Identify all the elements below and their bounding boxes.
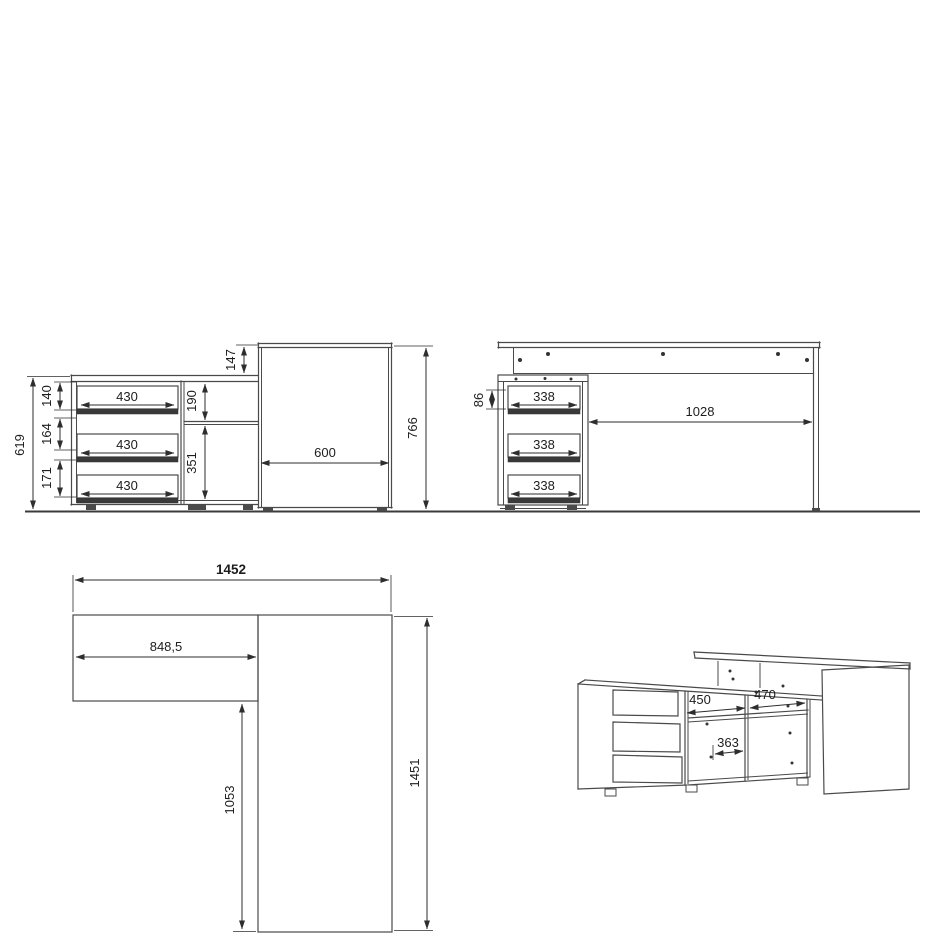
side-drawer-2: 338	[508, 434, 580, 462]
plan-view: 1452 848,5 1053 1451	[73, 562, 433, 932]
front-view: 430 430 430	[12, 343, 433, 512]
dim-front-shelf-lower: 351	[184, 452, 199, 474]
plan-dim-overall-depth: 1451	[394, 617, 433, 931]
dim-front-gap-top: 140	[39, 385, 54, 407]
iso-bracket	[718, 661, 760, 688]
dim-side-knee-clearance: 1028	[686, 404, 715, 419]
plan-desk-top	[258, 615, 392, 932]
dim-iso-shelf-right: 470	[754, 687, 776, 702]
iso-drawer-2	[613, 722, 680, 752]
dim-side-drawer-1: 338	[533, 389, 555, 404]
front-dim-desk-height: 766	[394, 346, 433, 509]
dim-front-drawer-1: 430	[116, 389, 138, 404]
technical-drawing-page: 430 430 430	[0, 0, 940, 940]
side-drawer-3: 338	[508, 475, 580, 503]
dim-front-drawer-2: 430	[116, 437, 138, 452]
iso-drawer-3	[613, 755, 682, 783]
front-drawer-3: 430	[77, 475, 178, 503]
iso-drawer-1	[613, 690, 678, 716]
dim-front-cabinet-height: 619	[12, 434, 27, 456]
side-leg-panel	[812, 348, 820, 512]
dim-side-drawer-3: 338	[533, 478, 555, 493]
front-desk-panel	[258, 343, 392, 512]
iso-dim-niche: 363	[713, 735, 743, 760]
side-dim-drawer-front-height: 86	[471, 390, 506, 409]
dim-front-desk-height: 766	[405, 417, 420, 439]
dim-plan-overall-width: 1452	[216, 562, 246, 577]
side-drawer-1: 338	[508, 386, 580, 414]
side-apron	[513, 348, 813, 374]
front-dim-shelf-lower: 351	[184, 426, 205, 499]
iso-dim-shelf-left: 450	[687, 692, 745, 713]
plan-dim-overall-width: 1452	[73, 562, 391, 612]
side-view: 338 338 338 86 1028	[471, 342, 820, 512]
side-desk-top	[498, 342, 820, 348]
front-drawer-2: 430	[77, 434, 178, 462]
dim-iso-shelf-left: 450	[689, 692, 711, 707]
drawing-canvas: 430 430 430	[0, 0, 940, 940]
dim-front-top-offset: 147	[223, 349, 238, 371]
iso-desk-side-panel	[822, 665, 909, 794]
front-dim-gap-mid: 164	[39, 418, 76, 450]
dim-plan-return-length: 848,5	[150, 639, 183, 654]
plan-dim-side-run: 1053	[222, 704, 256, 932]
front-dim-top-offset: 147	[223, 345, 258, 373]
dim-front-shelf-upper: 190	[184, 390, 199, 412]
front-drawer-1: 430	[77, 386, 178, 414]
side-dim-knee-clearance: 1028	[589, 404, 812, 422]
front-dim-shelf-upper: 190	[184, 384, 205, 420]
dim-front-gap-bottom: 171	[39, 467, 54, 489]
perspective-view: 450 470 363	[578, 652, 910, 796]
dim-front-desk-depth: 600	[314, 445, 336, 460]
dim-iso-niche: 363	[717, 735, 739, 750]
front-dim-gap-bottom: 171	[39, 460, 76, 497]
front-cabinet-outline	[71, 375, 258, 510]
dim-plan-side-run: 1053	[222, 786, 237, 815]
dim-front-gap-mid: 164	[39, 423, 54, 445]
dim-plan-overall-depth: 1451	[407, 759, 422, 788]
dim-side-drawer-front-height: 86	[471, 393, 486, 407]
front-dim-gap-top: 140	[39, 382, 76, 410]
front-dim-desk-depth: 600	[261, 445, 389, 463]
dim-front-drawer-3: 430	[116, 478, 138, 493]
plan-return-top	[73, 615, 258, 701]
plan-dim-return-length: 848,5	[76, 639, 256, 657]
dim-side-drawer-2: 338	[533, 437, 555, 452]
